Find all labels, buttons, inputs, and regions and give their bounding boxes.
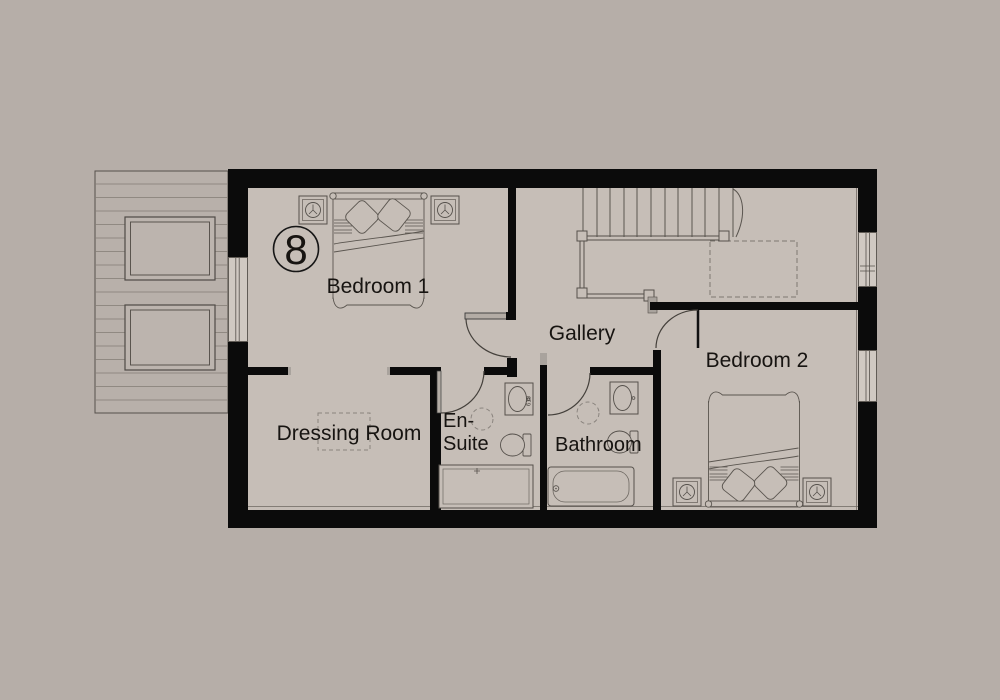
archway-jamb-cap (387, 367, 390, 375)
plot-number: 8 (284, 226, 307, 273)
ensuite-toilet (501, 434, 532, 456)
window-bedroom2-east (858, 350, 877, 402)
gallery-label: Gallery (549, 322, 616, 345)
bedroom2-north-wall (650, 302, 858, 310)
exterior-wall-left-lower (228, 342, 248, 528)
exterior-wall-right-upper (858, 169, 877, 232)
skylight-upper (125, 217, 215, 280)
bathroom-sink (610, 382, 638, 414)
exterior-wall-left-upper (228, 169, 248, 257)
ensuite-shower-tray (439, 465, 533, 508)
railing-post (719, 231, 729, 241)
bedroom1-east-wall (508, 188, 516, 318)
skylight-lower (125, 305, 215, 370)
sink-dimension-label: 610 (527, 395, 533, 406)
nightstand-lamp (431, 196, 459, 224)
bedroom2-label: Bedroom 2 (706, 349, 809, 372)
bathroom-bathtub (548, 467, 634, 506)
exterior-wall-right-lower (858, 402, 877, 510)
bedroom1-door-hinge (506, 312, 516, 320)
bedroom1-door-leaf (465, 313, 513, 319)
dressing-north-wall-left (248, 367, 288, 375)
ensuite-label-line2: Suite (443, 433, 489, 455)
window-gallery-east (858, 232, 877, 287)
railing-post (577, 288, 587, 298)
nightstand-lamp (299, 196, 327, 224)
dressing-room-label: Dressing Room (277, 422, 422, 445)
bathroom-label: Bathroom (555, 434, 642, 456)
bedroom2-west-wall (653, 350, 661, 510)
ensuite-north-wall (484, 367, 517, 375)
ensuite-label-line1: En- (443, 410, 474, 432)
bathroom-wall-jamb-cap (540, 353, 547, 365)
exterior-wall-right-mid (858, 287, 877, 350)
nightstand-lamp (803, 478, 831, 506)
ensuite-door-leaf (437, 371, 441, 413)
nightstand-lamp (673, 478, 701, 506)
railing-post (577, 231, 587, 241)
floor-plan-page: 610 8 Bedroom 1 Gallery Bedroom 2 Dressi… (0, 0, 1000, 700)
exterior-wall-bottom (228, 510, 877, 528)
exterior-wall-top (228, 169, 877, 188)
flat-roof-area (95, 171, 228, 413)
archway-jamb-cap (288, 367, 291, 375)
ensuite-bathroom-wall (540, 353, 547, 510)
bathroom-north-wall (590, 367, 655, 375)
bedroom1-label: Bedroom 1 (327, 275, 430, 298)
window-bedroom1-west (228, 257, 248, 342)
floor-plan-drawing: 610 8 Bedroom 1 Gallery Bedroom 2 Dressi… (0, 0, 1000, 700)
